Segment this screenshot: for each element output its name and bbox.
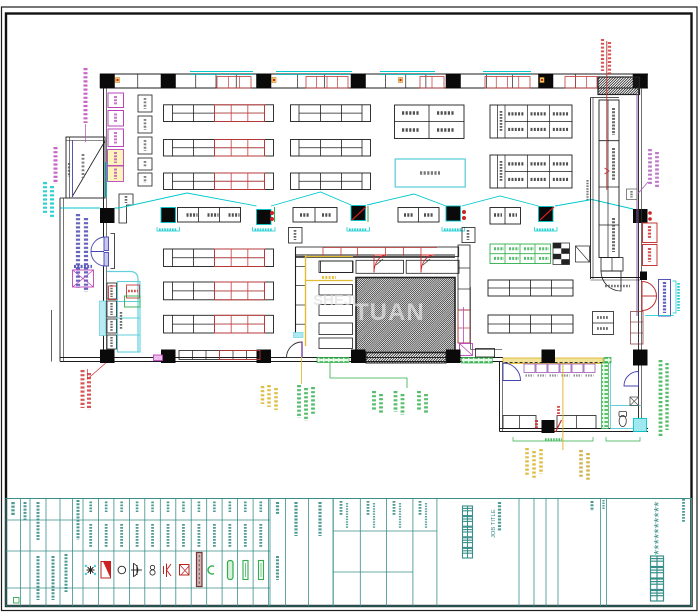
svg-text:TUAN: TUAN: [354, 299, 425, 326]
svg-text:JOB TITLE: JOB TITLE: [491, 509, 497, 538]
svg-text:**********: **********: [651, 501, 666, 555]
svg-text:SHEJI: SHEJI: [313, 292, 356, 309]
